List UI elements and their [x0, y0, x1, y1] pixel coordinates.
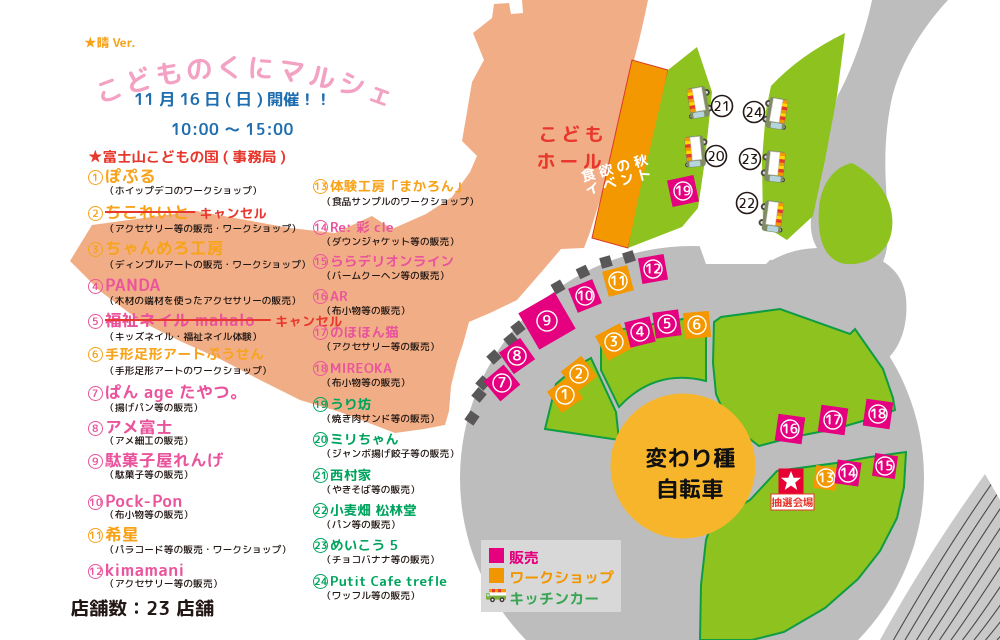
svg-text:12: 12: [645, 261, 662, 279]
svg-text:4: 4: [636, 323, 645, 342]
svg-text:3: 3: [610, 333, 619, 352]
svg-text:2: 2: [575, 365, 584, 384]
svg-text:1: 1: [561, 386, 570, 405]
svg-text:23: 23: [741, 150, 758, 169]
svg-text:24: 24: [745, 103, 762, 122]
svg-text:22: 22: [738, 194, 755, 213]
svg-text:9: 9: [543, 312, 552, 331]
svg-text:5: 5: [663, 315, 672, 334]
svg-text:14: 14: [840, 465, 857, 483]
svg-text:18: 18: [870, 406, 887, 424]
svg-text:7: 7: [498, 374, 507, 393]
svg-text:8: 8: [513, 347, 522, 366]
svg-text:16: 16: [782, 421, 799, 439]
svg-text:6: 6: [693, 316, 702, 335]
svg-text:15: 15: [877, 458, 894, 476]
svg-text:10: 10: [577, 288, 594, 306]
svg-text:21: 21: [713, 97, 730, 116]
svg-text:20: 20: [707, 147, 725, 166]
svg-text:13: 13: [818, 470, 835, 488]
svg-text:11: 11: [610, 273, 627, 291]
svg-text:19: 19: [675, 183, 692, 201]
svg-text:17: 17: [825, 412, 842, 430]
